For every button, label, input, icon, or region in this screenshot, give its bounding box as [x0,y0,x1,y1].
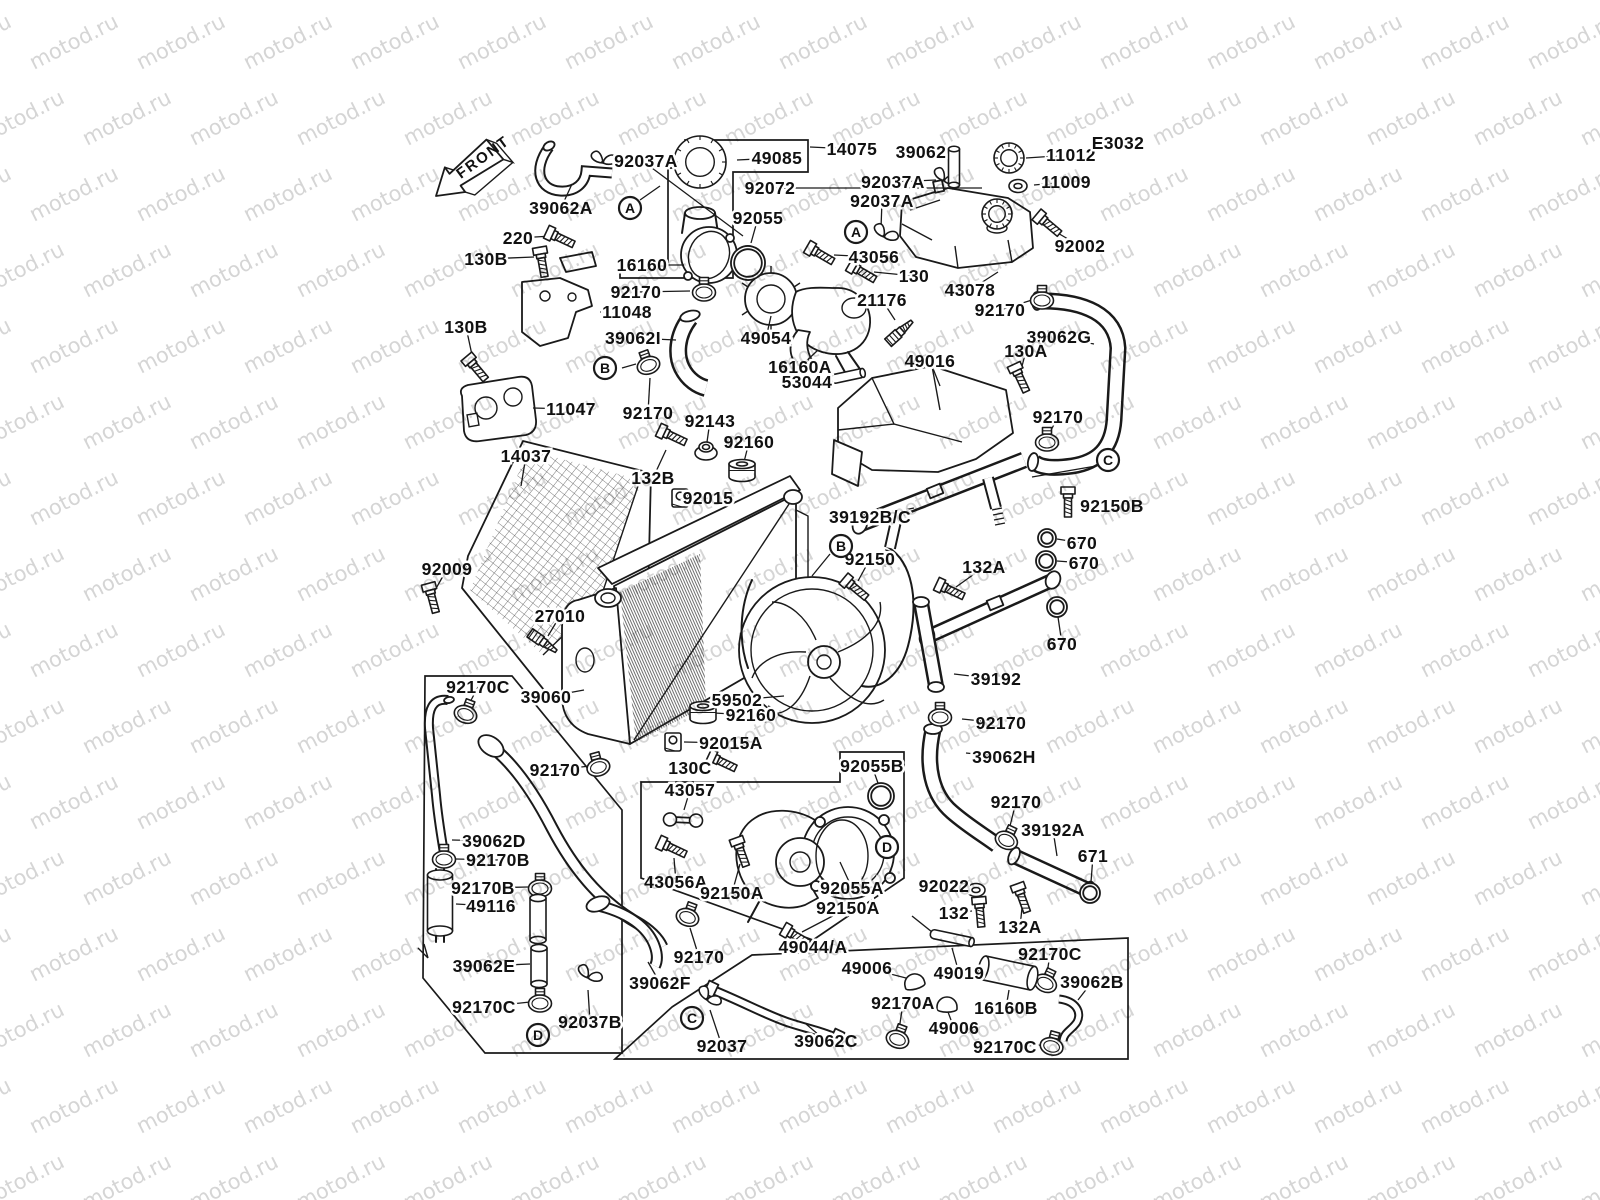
bolt-part [1032,209,1064,239]
watermark-text: motod.ru [1148,541,1245,606]
watermark-text: motod.ru [1469,693,1566,758]
watermark-text: motod.ru [613,1149,710,1200]
watermark-text: motod.ru [1255,845,1352,910]
watermark-text: motod.ru [1041,997,1138,1062]
watermark-text: motod.ru [1148,85,1245,150]
watermark-text: motod.ru [1255,85,1352,150]
watermark-text: motod.ru [1202,161,1299,226]
watermark-text: motod.ru [1309,313,1406,378]
watermark-text: motod.ru [1576,997,1600,1062]
reference-letter: B [836,538,846,554]
part-number-label: 39062 [896,142,947,162]
part-number-label: 92055B [840,756,904,776]
watermark-text: motod.ru [185,541,282,606]
watermark-text: motod.ru [239,769,336,834]
watermark-text: motod.ru [0,389,68,454]
watermark-text: motod.ru [1416,465,1513,530]
watermark-text: motod.ru [1202,465,1299,530]
watermark-text: motod.ru [346,1073,443,1138]
watermark-text: motod.ru [292,541,389,606]
clamp-part [633,347,663,377]
watermark-text: motod.ru [1202,921,1299,986]
part-number-label: 49116 [466,896,516,916]
watermark-text: motod.ru [774,9,871,74]
watermark-text: motod.ru [1523,9,1600,74]
watermark-text: motod.ru [346,617,443,682]
dome-cap [937,997,957,1012]
watermark-text: motod.ru [613,997,710,1062]
part-number-label: 49085 [752,148,803,168]
reference-circle: A [845,221,867,243]
watermark-text: motod.ru [1309,465,1406,530]
watermark-text: motod.ru [292,845,389,910]
watermark-text: motod.ru [239,313,336,378]
bolt-shaft [1043,219,1062,237]
watermark-text: motod.ru [0,1073,15,1138]
watermark-text: motod.ru [185,997,282,1062]
watermark-text: motod.ru [292,237,389,302]
watermark-text: motod.ru [1148,237,1245,302]
watermark-text: motod.ru [1469,85,1566,150]
watermark-text: motod.ru [1202,9,1299,74]
watermark-text: motod.ru [1309,1073,1406,1138]
watermark-text: motod.ru [292,997,389,1062]
watermark-text: motod.ru [1202,1073,1299,1138]
watermark-text: motod.ru [1148,389,1245,454]
watermark-text: motod.ru [292,85,389,150]
watermark-text: motod.ru [1362,237,1459,302]
watermark-text: motod.ru [78,85,175,150]
part-number-label: 130C [668,758,711,778]
reference-letter: A [625,200,635,216]
part-number-label: 27010 [535,606,586,626]
watermark-text: motod.ru [78,997,175,1062]
watermark-text: motod.ru [1255,997,1352,1062]
watermark-text: motod.ru [1469,1149,1566,1200]
part-number-label: 130B [444,317,487,337]
bushing-part [695,442,717,460]
watermark-text: motod.ru [185,1149,282,1200]
watermark-text: motod.ru [185,85,282,150]
part-number-label: 39192A [1021,820,1085,840]
watermark-text: motod.ru [132,769,229,834]
watermark-text: motod.ru [239,465,336,530]
watermark-text: motod.ru [1309,617,1406,682]
part-number-label: 220 [503,228,533,248]
watermark-text: motod.ru [1095,921,1192,986]
watermark-text: motod.ru [1469,389,1566,454]
part-number-label: 21176 [857,290,907,310]
watermark-text: motod.ru [1576,85,1600,150]
leader-line [622,364,636,368]
reference-letter: D [882,839,892,855]
watermark-text: motod.ru [934,85,1031,150]
watermark-text: motod.ru [25,465,122,530]
cylinder-end [531,980,547,987]
watermark-text: motod.ru [1523,921,1600,986]
watermark-text: motod.ru [1523,617,1600,682]
watermark-text: motod.ru [1523,465,1600,530]
watermark-text: motod.ru [25,9,122,74]
watermark-text: motod.ru [25,769,122,834]
watermark-text: motod.ru [934,1149,1031,1200]
part-number-label: 670 [1067,533,1097,553]
watermark-text: motod.ru [1416,617,1513,682]
damper-hole [669,736,677,744]
watermark-text: motod.ru [1416,769,1513,834]
watermark-text: motod.ru [292,1149,389,1200]
watermark-text: motod.ru [185,389,282,454]
watermark-text: motod.ru [1309,161,1406,226]
watermark-text: motod.ru [185,237,282,302]
watermark-text: motod.ru [1309,769,1406,834]
oring-part [868,783,894,809]
watermark-text: motod.ru [881,465,978,530]
watermark-text: motod.ru [1255,237,1352,302]
watermark-text: motod.ru [0,921,15,986]
watermark-text: motod.ru [346,313,443,378]
watermark-text: motod.ru [1576,845,1600,910]
watermark-text: motod.ru [1255,389,1352,454]
watermark-text: motod.ru [78,389,175,454]
watermark-text: motod.ru [1362,85,1459,150]
watermark-text: motod.ru [453,1073,550,1138]
watermark-text: motod.ru [881,1073,978,1138]
watermark-text: motod.ru [1416,921,1513,986]
watermark-text: motod.ru [0,465,15,530]
clamp-part [583,750,611,779]
oring-part [1038,529,1056,547]
watermark-text: motod.ru [1148,693,1245,758]
sensor-tip [900,319,914,333]
watermark-text: motod.ru [0,845,68,910]
watermark-text: motod.ru [1041,693,1138,758]
watermark-text: motod.ru [185,693,282,758]
parts-diagram-page: FRONT [0,0,1600,1200]
watermark-text: motod.ru [0,997,68,1062]
reference-letter: C [1103,452,1113,468]
wire-clip [874,224,898,240]
watermark-text: motod.ru [667,1073,764,1138]
watermark-text: motod.ru [132,313,229,378]
watermark-text: motod.ru [1148,845,1245,910]
watermark-text: motod.ru [78,237,175,302]
watermark-text: motod.ru [132,617,229,682]
watermark-text: motod.ru [78,693,175,758]
clamp-part [674,899,704,929]
watermark-text: motod.ru [25,617,122,682]
watermark-text: motod.ru [292,389,389,454]
watermark-text: motod.ru [25,161,122,226]
clamp-band [585,756,612,778]
watermark-text: motod.ru [1576,693,1600,758]
bolt-shaft [1017,893,1030,913]
watermark-text: motod.ru [1469,845,1566,910]
bolt-part [972,896,989,927]
watermark-text: motod.ru [239,1073,336,1138]
watermark-text: motod.ru [0,541,68,606]
watermark-text: motod.ru [185,845,282,910]
watermark-text: motod.ru [1202,769,1299,834]
watermark-text: motod.ru [239,9,336,74]
part-number-label: 49019 [934,963,985,983]
watermark-text: motod.ru [1576,237,1600,302]
watermark-text: motod.ru [0,237,68,302]
watermark-text: motod.ru [1095,9,1192,74]
watermark-text: motod.ru [1576,541,1600,606]
watermark-text: motod.ru [1309,9,1406,74]
watermark-text: motod.ru [346,921,443,986]
watermark-text: motod.ru [1416,1073,1513,1138]
oring-inner [871,786,891,806]
watermark-text: motod.ru [399,85,496,150]
part-number-label: 39062H [972,747,1036,767]
watermark-text: motod.ru [1041,1149,1138,1200]
watermark-text: motod.ru [78,1149,175,1200]
watermark-text: motod.ru [667,9,764,74]
grommet-hole [737,462,748,466]
reference-circle: B [830,535,852,557]
watermark-text: motod.ru [0,313,15,378]
cap-part [994,143,1024,173]
watermark-text: motod.ru [774,1073,871,1138]
watermark-text: motod.ru [25,1073,122,1138]
watermark-text: motod.ru [506,85,603,150]
cooling-system-parts-diagram: FRONT [0,0,1600,1200]
watermark-text: motod.ru [1416,313,1513,378]
watermark-text: motod.ru [399,1149,496,1200]
watermark-text: motod.ru [132,161,229,226]
watermark-text: motod.ru [1202,313,1299,378]
watermark-text: motod.ru [25,313,122,378]
watermark-text: motod.ru [239,617,336,682]
watermark-text: motod.ru [1095,161,1192,226]
watermark-text: motod.ru [1362,1149,1459,1200]
watermark-text: motod.ru [132,1073,229,1138]
watermark-text: motod.ru [1095,617,1192,682]
watermark-text: motod.ru [346,769,443,834]
watermark-text: motod.ru [1362,997,1459,1062]
watermark-text: motod.ru [0,85,68,150]
cap-outer [994,143,1024,173]
watermark-text: motod.ru [1362,693,1459,758]
watermark-text: motod.ru [78,845,175,910]
wire-clip-pivot [883,235,886,238]
watermark-text: motod.ru [0,617,15,682]
leader-line [812,554,830,576]
watermark-text: motod.ru [25,921,122,986]
watermark-text: motod.ru [346,161,443,226]
oring-part [1036,551,1056,571]
watermark-text: motod.ru [0,1149,68,1200]
watermark-text: motod.ru [1148,997,1245,1062]
watermark-text: motod.ru [988,9,1085,74]
watermark-text: motod.ru [1095,1073,1192,1138]
watermark-text: motod.ru [560,1073,657,1138]
part-number-label: 132A [998,917,1041,937]
watermark-text: motod.ru [1576,1149,1600,1200]
watermark-text: motod.ru [1255,1149,1352,1200]
watermark-text: motod.ru [1362,541,1459,606]
watermark-text: motod.ru [132,921,229,986]
oring-inner [1039,554,1053,568]
watermark-text: motod.ru [881,9,978,74]
watermark-text: motod.ru [1309,921,1406,986]
watermark-text: motod.ru [0,693,68,758]
part-number-label: 92170 [975,300,1026,320]
part-number-label: 92170C [446,677,510,697]
watermark-text: motod.ru [1469,541,1566,606]
watermark-text: motod.ru [506,1149,603,1200]
part-number-label: 92055 [733,208,784,228]
reference-circle: C [1097,449,1119,471]
watermark-text: motod.ru [988,1073,1085,1138]
dome-part [937,997,957,1012]
watermark-text: motod.ru [1523,161,1600,226]
watermark-text: motod.ru [292,693,389,758]
watermark-text: motod.ru [1416,161,1513,226]
clip-part [874,224,898,240]
watermark-text: motod.ru [399,237,496,302]
watermark-text: motod.ru [1255,541,1352,606]
rod-part [830,368,866,384]
watermark-text: motod.ru [132,9,229,74]
part-number-label: 39062D [462,831,526,851]
bolt-part [1010,882,1033,915]
watermark-text: motod.ru [0,161,15,226]
part-number-label: E3032 [1092,133,1145,153]
clamp-part [529,989,552,1013]
clamp-part [929,703,952,727]
watermark-text: motod.ru [239,921,336,986]
watermark-text: motod.ru [346,465,443,530]
watermark-text: motod.ru [1148,1149,1245,1200]
reference-letter: A [851,224,861,240]
part-number-label: 39060 [521,687,572,707]
watermark-text: motod.ru [1523,313,1600,378]
watermark-text: motod.ru [1095,769,1192,834]
watermark-text: motod.ru [1362,389,1459,454]
watermark-text: motod.ru [239,161,336,226]
watermark-text: motod.ru [720,1149,817,1200]
watermark-text: motod.ru [346,9,443,74]
watermark-text: motod.ru [1523,769,1600,834]
watermark-text: motod.ru [1469,237,1566,302]
watermark-text: motod.ru [453,9,550,74]
bushing-hole [703,445,710,450]
watermark-text: motod.ru [827,1149,924,1200]
watermark-text: motod.ru [560,9,657,74]
watermark-text: motod.ru [1362,845,1459,910]
watermark-text: motod.ru [1255,693,1352,758]
watermark-text: motod.ru [1202,617,1299,682]
cylinder-body [531,948,547,984]
watermark-text: motod.ru [1576,389,1600,454]
watermark-text: motod.ru [0,9,15,74]
watermark-text: motod.ru [1523,1073,1600,1138]
watermark-text: motod.ru [0,769,15,834]
watermark-text: motod.ru [132,465,229,530]
watermark-text: motod.ru [1416,9,1513,74]
oring-inner [1041,532,1053,544]
watermark-text: motod.ru [1469,997,1566,1062]
front-arrow-text: FRONT [453,132,513,182]
watermark-text: motod.ru [78,541,175,606]
